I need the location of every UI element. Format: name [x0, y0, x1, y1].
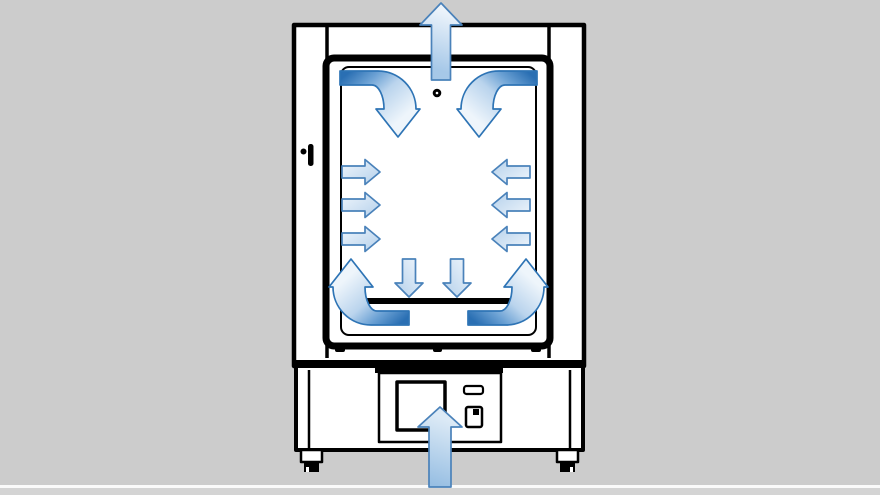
- door-tab-center: [433, 345, 442, 352]
- oven-cabinet: [294, 25, 584, 472]
- footer-strip: [0, 488, 880, 495]
- door-tab-right: [531, 344, 541, 352]
- power-slot: [464, 386, 483, 394]
- left-foot: [301, 450, 322, 472]
- right-foot: [557, 450, 578, 472]
- chamber-floor-line: [342, 298, 535, 304]
- power-switch-dot: [473, 409, 479, 415]
- door-tab-left: [335, 344, 345, 352]
- vent-hole-center: [436, 92, 439, 95]
- door-handle-bar: [308, 144, 314, 166]
- door-handle-knob: [301, 149, 307, 155]
- oven-airflow-diagram: [0, 0, 880, 495]
